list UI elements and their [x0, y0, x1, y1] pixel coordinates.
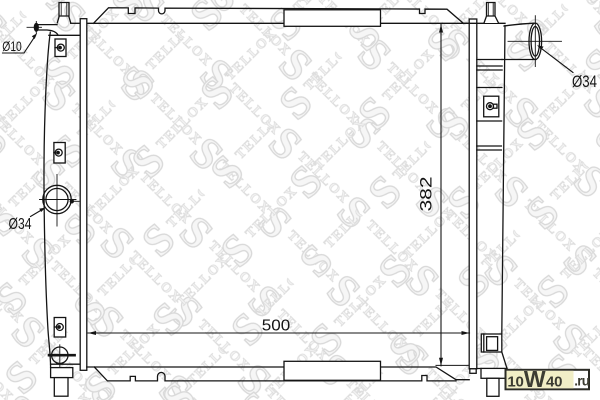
svg-text:.ru: .ru — [574, 374, 589, 389]
svg-text:382: 382 — [417, 177, 436, 212]
svg-text:W: W — [524, 366, 546, 392]
svg-text:Ø34: Ø34 — [572, 72, 597, 91]
svg-text:40: 40 — [546, 373, 563, 390]
svg-text:10: 10 — [507, 373, 524, 390]
svg-text:500: 500 — [262, 318, 291, 335]
svg-text:Ø10: Ø10 — [2, 39, 22, 54]
svg-text:Ø34: Ø34 — [9, 216, 32, 233]
